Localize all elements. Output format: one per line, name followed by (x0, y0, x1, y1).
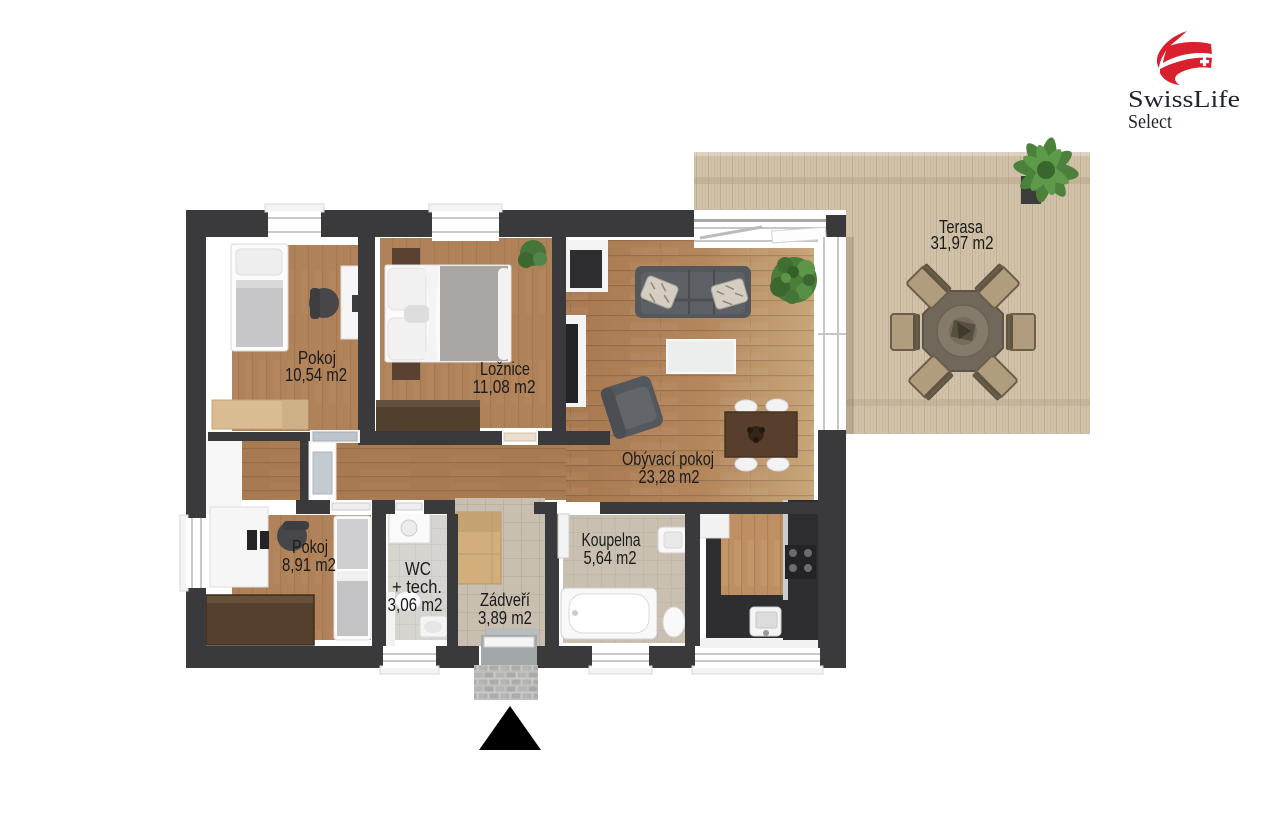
svg-text:Zádveří: Zádveří (480, 590, 530, 610)
svg-text:31,97 m2: 31,97 m2 (931, 233, 994, 253)
svg-text:WC: WC (405, 559, 431, 579)
svg-text:SwissLife: SwissLife (1128, 87, 1240, 113)
svg-text:23,28 m2: 23,28 m2 (639, 467, 700, 487)
svg-text:+ tech.: + tech. (392, 577, 442, 597)
svg-text:11,08 m2: 11,08 m2 (473, 377, 536, 397)
svg-text:Obývací pokoj: Obývací pokoj (622, 449, 714, 469)
svg-text:Koupelna: Koupelna (582, 530, 642, 550)
svg-text:5,64 m2: 5,64 m2 (584, 548, 637, 568)
svg-text:Select: Select (1128, 111, 1172, 133)
svg-text:Ložnice: Ložnice (480, 359, 530, 379)
svg-text:10,54 m2: 10,54 m2 (285, 365, 347, 385)
svg-text:3,89 m2: 3,89 m2 (478, 608, 532, 628)
svg-text:3,06 m2: 3,06 m2 (388, 595, 443, 615)
svg-text:Pokoj: Pokoj (292, 537, 328, 557)
svg-text:8,91 m2: 8,91 m2 (282, 555, 336, 575)
